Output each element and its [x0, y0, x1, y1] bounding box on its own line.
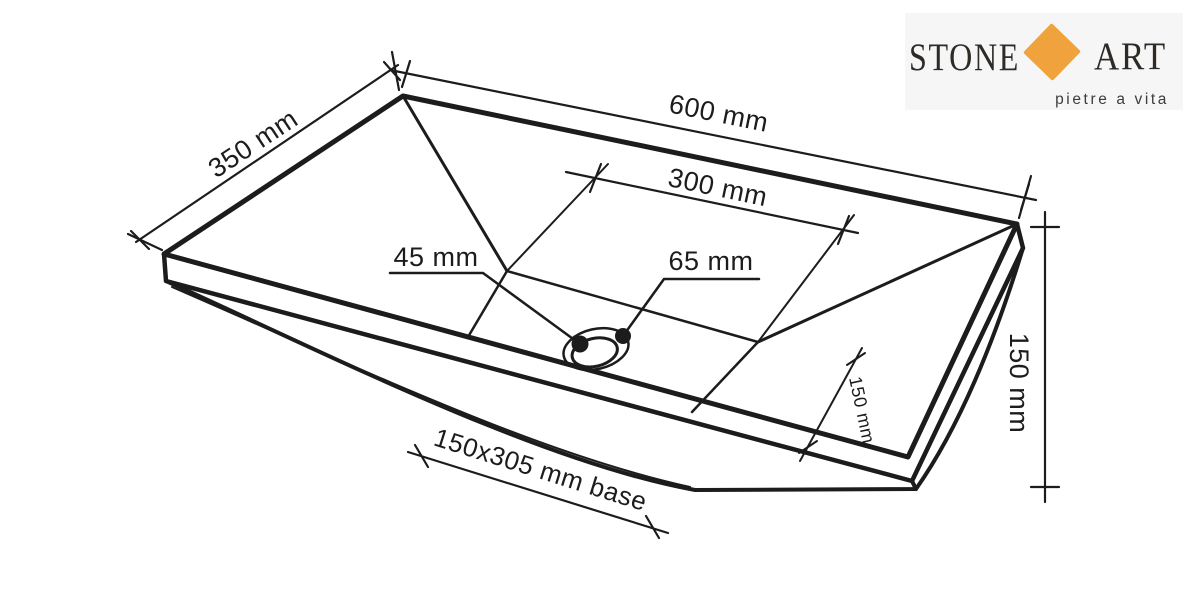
logo-word-stone: STONE [909, 36, 1020, 79]
tick [415, 445, 428, 467]
dim-line-350 [136, 65, 398, 242]
label-top-width: 600 mm [667, 89, 771, 138]
sink-drawing: 600 mm 350 mm 300 mm 45 mm 65 mm 150 mm … [128, 52, 1059, 538]
drain [559, 322, 632, 376]
basin-ridge-front-left [468, 271, 507, 337]
sink-technical-drawing: 600 mm 350 mm 300 mm 45 mm 65 mm 150 mm … [0, 0, 1200, 600]
dim-left-depth [128, 62, 400, 250]
dim-height [1031, 212, 1059, 502]
extension-line-left [507, 164, 608, 271]
basin-bottom-channel [507, 271, 758, 342]
sink-rim-band [164, 224, 1023, 481]
basin-ridge-lines [403, 96, 1017, 342]
label-drain-flange: 65 mm [668, 246, 753, 276]
sink-top-face [164, 96, 1017, 457]
diagram-canvas: 600 mm 350 mm 300 mm 45 mm 65 mm 150 mm … [0, 0, 1200, 600]
leader-drain-flange [623, 279, 759, 336]
basin-ridge-back-right [758, 224, 1017, 342]
extension-line-right [758, 215, 854, 342]
logo-tagline: pietre a vita [1055, 91, 1169, 108]
logo-word-art: ART [1094, 35, 1167, 78]
basin-ridge-front-right [692, 342, 758, 412]
tick [847, 353, 865, 365]
label-drain-hole: 45 mm [393, 242, 478, 272]
label-height: 150 mm [1004, 333, 1034, 434]
stoneart-logo: STONE ART pietre a vita [905, 13, 1183, 110]
sink-body-crease-line [172, 287, 690, 487]
leader-line-65 [623, 279, 759, 336]
label-drain-offset: 150 mm [845, 375, 879, 446]
